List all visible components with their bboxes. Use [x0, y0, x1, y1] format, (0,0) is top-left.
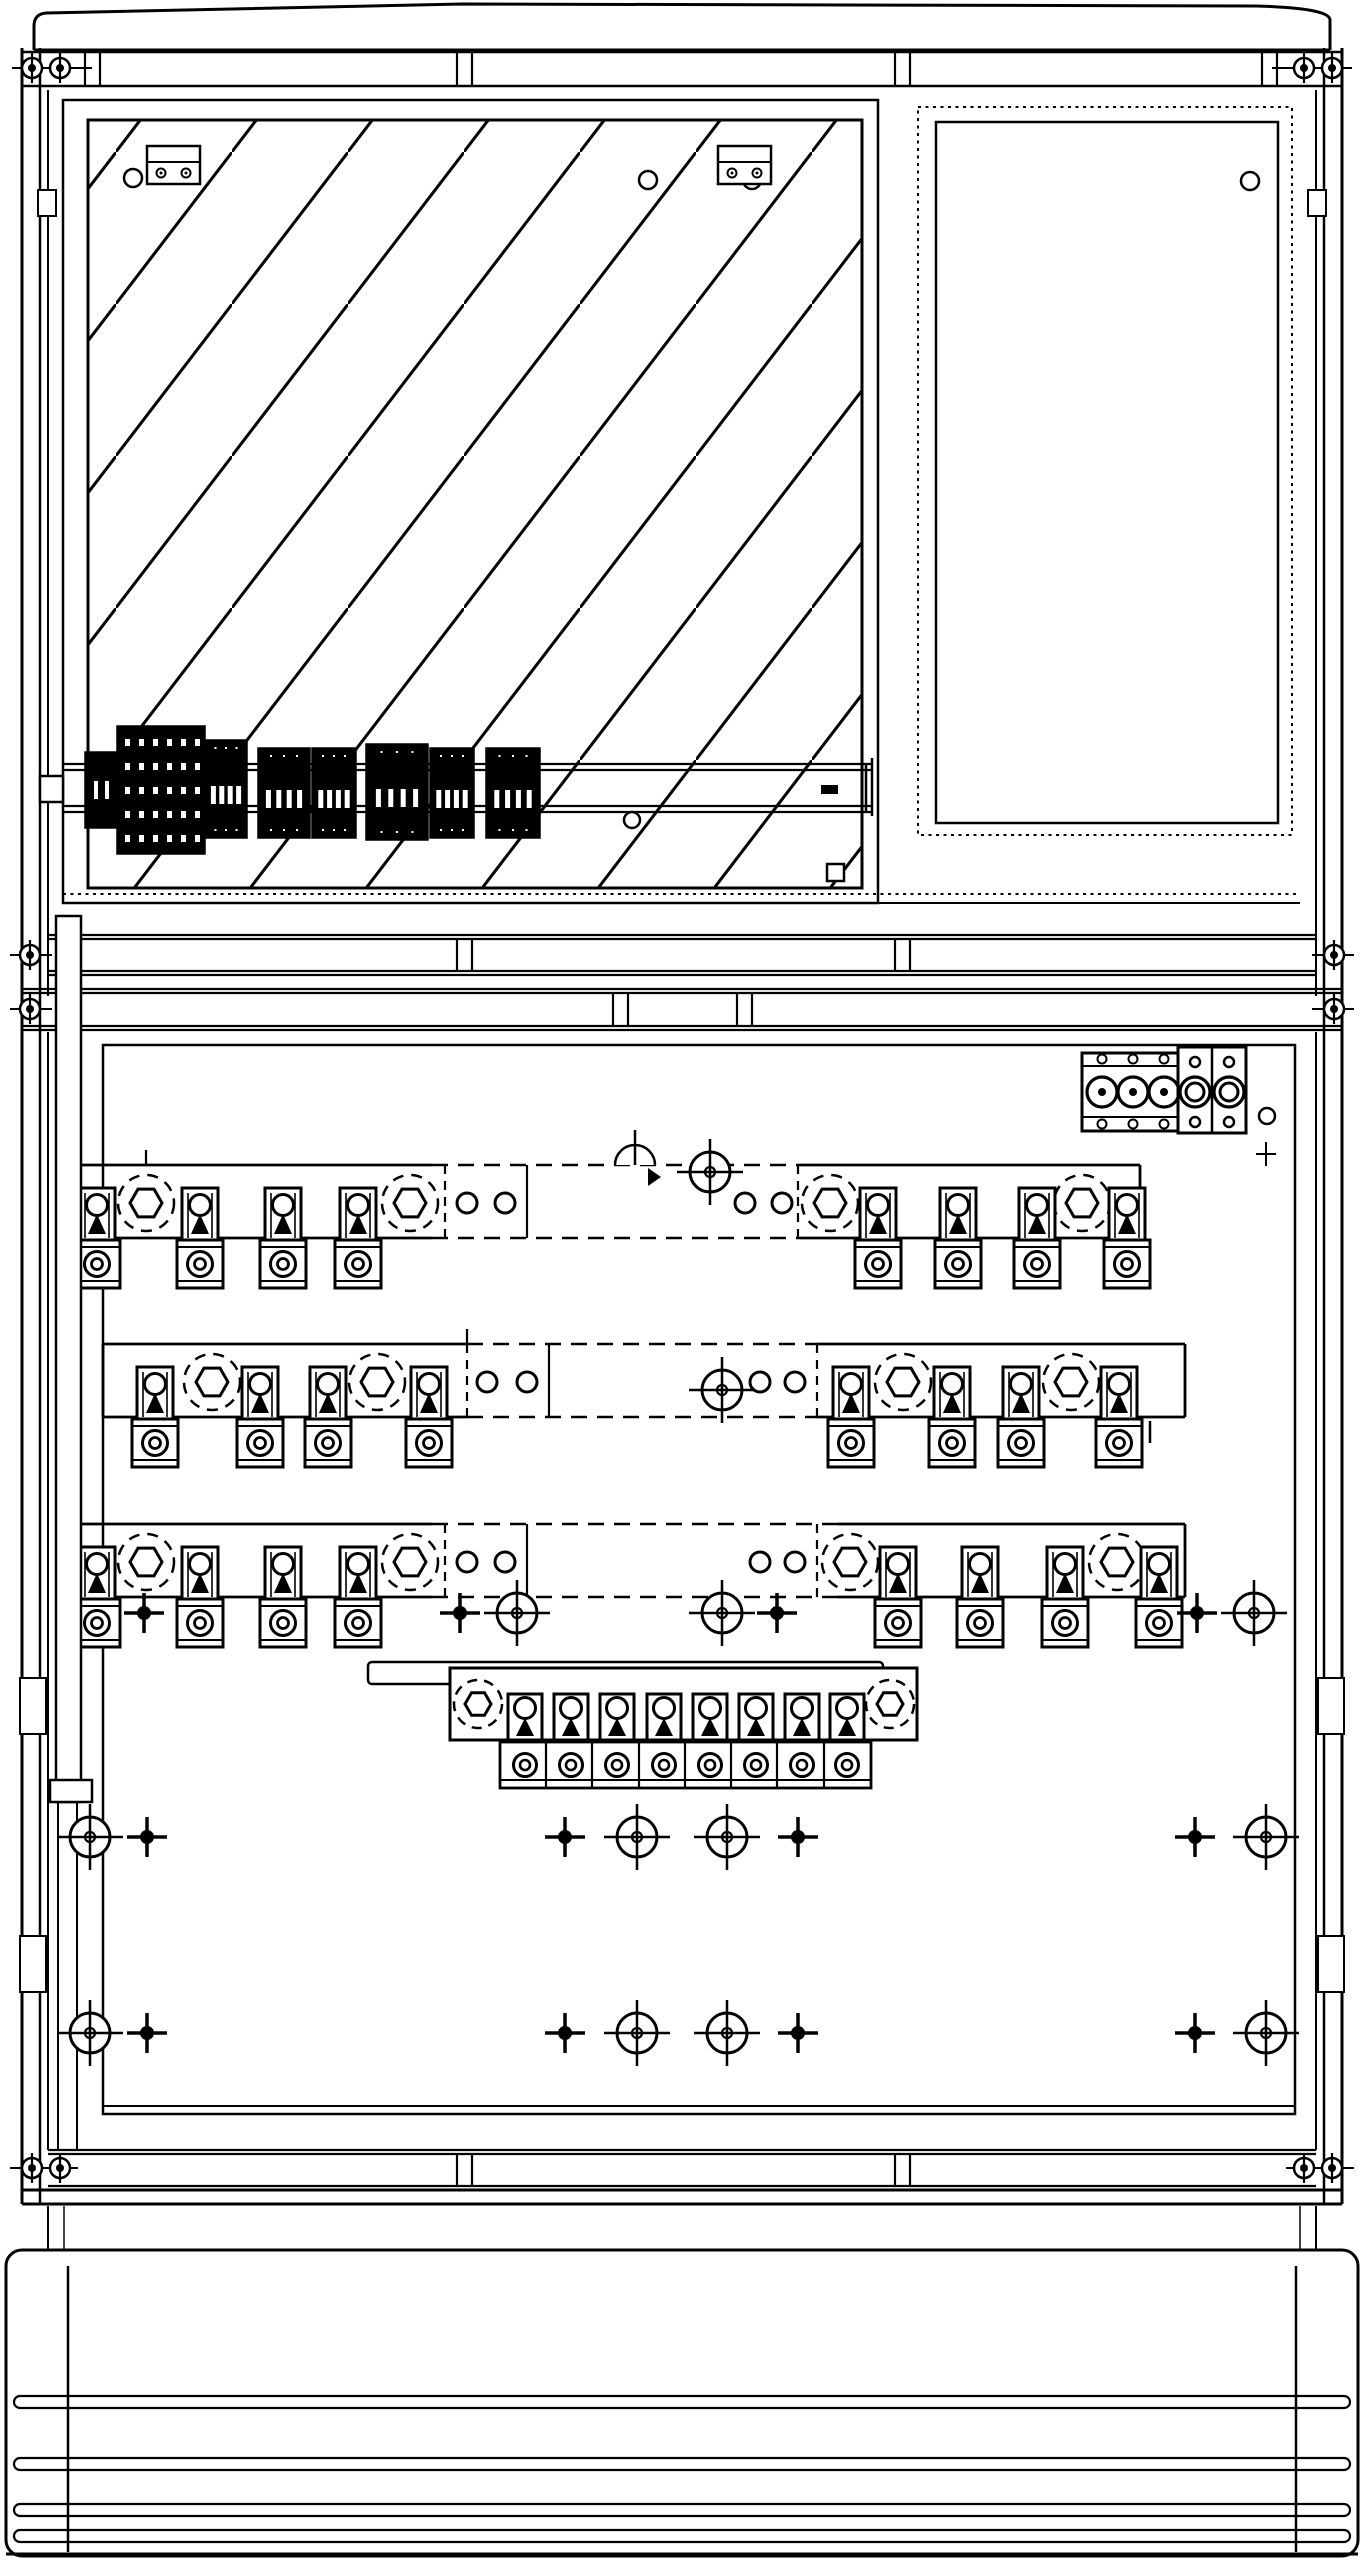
clamp-screw-icon	[87, 1554, 108, 1575]
cable-bracket	[718, 146, 771, 184]
block-slot	[166, 786, 173, 795]
busbar-row-L3	[74, 1524, 1185, 1647]
target-dot	[88, 1835, 92, 1839]
pad-ring-inner	[278, 1259, 289, 1270]
plus-marker-dot	[453, 1606, 467, 1620]
block-dot	[511, 828, 515, 832]
minus-mark-icon	[822, 786, 837, 793]
block-slot	[194, 762, 201, 771]
block-slot	[462, 789, 469, 809]
block-slot	[166, 834, 173, 843]
bracket-screw-dot	[731, 172, 734, 175]
frame-rect	[1318, 1678, 1344, 1734]
clamp-screw-icon	[888, 1554, 909, 1575]
block-slot	[166, 762, 173, 771]
target-dot	[635, 2031, 639, 2035]
pad-ring-inner	[92, 1259, 103, 1270]
target-dot	[708, 1170, 712, 1174]
pad-ring-inner	[612, 1760, 622, 1770]
block-slot	[526, 789, 533, 809]
block-dot	[439, 754, 443, 758]
block-slot	[104, 780, 110, 800]
block-dot	[321, 754, 325, 758]
pad-ring-inner	[150, 1438, 161, 1449]
block-slot	[152, 810, 159, 819]
pad-ring-inner	[353, 1259, 364, 1270]
plus-marker-dot	[791, 1830, 805, 1844]
frame-rect	[936, 122, 1278, 823]
pad-ring-inner	[520, 1760, 530, 1770]
plus-marker-dot	[558, 1830, 572, 1844]
pad-ring-inner	[278, 1618, 289, 1629]
block-slot	[152, 738, 159, 747]
block-slot	[444, 789, 451, 809]
busbar-hole-icon	[750, 1552, 770, 1572]
block-slot	[194, 834, 201, 843]
block-slot	[124, 786, 131, 795]
block-slot	[138, 762, 145, 771]
pad-ring-inner	[1122, 1259, 1133, 1270]
connector-screw-icon	[1098, 1055, 1107, 1064]
plinth-groove	[14, 2458, 1350, 2470]
pad-ring-inner	[323, 1438, 334, 1449]
bracket-screw-dot	[160, 172, 163, 175]
bracket-screw-dot	[756, 172, 759, 175]
plus-marker-dot	[137, 1606, 151, 1620]
block-slot	[387, 788, 394, 808]
plus-marker-dot	[558, 2026, 572, 2040]
block-dot	[450, 828, 454, 832]
neutral-bar-assembly	[368, 1662, 917, 1788]
plus-marker-dot	[140, 2026, 154, 2040]
block-slot	[326, 789, 333, 809]
clamp-screw-icon	[792, 1698, 813, 1719]
block-dot	[269, 828, 273, 832]
frame-rect	[20, 1936, 46, 1992]
plus-marker-dot	[140, 1830, 154, 1844]
frame-rect	[1318, 1936, 1344, 1992]
block-slot	[180, 786, 187, 795]
block-slot	[344, 789, 351, 809]
plus-marker-dot	[1188, 1830, 1202, 1844]
block-dot	[224, 746, 228, 750]
block-dot	[321, 828, 325, 832]
clamp-screw-icon	[561, 1698, 582, 1719]
half-target-flag	[648, 1168, 661, 1186]
pad-ring-inner	[1032, 1259, 1043, 1270]
block-dot	[343, 754, 347, 758]
target-dot	[1264, 1835, 1268, 1839]
pad-ring-inner	[846, 1438, 857, 1449]
block-slot	[515, 789, 522, 809]
target-dot	[725, 2031, 729, 2035]
busbar-row-L1	[74, 1130, 1150, 1288]
hex-bolt-icon	[130, 1189, 162, 1217]
clamp-screw-icon	[1117, 1195, 1138, 1216]
block-slot	[138, 834, 145, 843]
pad-ring-inner	[873, 1259, 884, 1270]
block-slot	[493, 789, 500, 809]
block-dot	[295, 828, 299, 832]
block-dot	[224, 828, 228, 832]
block-dot	[511, 754, 515, 758]
hex-bolt-icon	[1066, 1189, 1098, 1217]
busbar-hole-icon	[495, 1193, 515, 1213]
target-dot	[720, 1611, 724, 1615]
clamp-screw-icon	[419, 1374, 440, 1395]
block-dot	[411, 830, 415, 834]
pad-ring-inner	[893, 1618, 904, 1629]
block-slot	[166, 810, 173, 819]
clamp-screw-icon	[654, 1698, 675, 1719]
connector-screw-icon	[1129, 1055, 1138, 1064]
block-slot	[435, 789, 442, 809]
right-door-panel	[1241, 172, 1259, 190]
hex-bolt-icon	[834, 1548, 866, 1576]
clamp-screw-icon	[746, 1698, 767, 1719]
rail-left-connector	[40, 776, 63, 802]
plus-marker-dot	[770, 1606, 784, 1620]
clamp-screw-icon	[1055, 1554, 1076, 1575]
busbar-hole-icon	[517, 1372, 537, 1392]
clamp-screw-icon	[837, 1698, 858, 1719]
pad-ring-inner	[842, 1760, 852, 1770]
block-dot	[525, 828, 529, 832]
cabinet-front-view-drawing: Cable distribution cabinet - front view …	[0, 0, 1364, 2560]
fuse-screw-icon	[1224, 1057, 1234, 1067]
busbar-hole-icon	[457, 1552, 477, 1572]
pad-ring-inner	[1154, 1618, 1165, 1629]
hex-bolt-icon	[361, 1368, 393, 1396]
target-dot	[515, 1611, 519, 1615]
block-slot	[375, 788, 382, 808]
block-dot	[380, 830, 384, 834]
block-dot	[214, 746, 218, 750]
busbar-hole-icon	[785, 1372, 805, 1392]
block-dot	[282, 828, 286, 832]
busbar-hole-icon	[477, 1372, 497, 1392]
fuse-screw-icon	[1190, 1117, 1200, 1127]
busbar-assembly	[74, 1130, 1185, 1647]
block-slot	[218, 785, 225, 805]
block-slot	[180, 834, 187, 843]
pad-ring-inner	[705, 1760, 715, 1770]
connector-screw-icon	[1098, 1120, 1107, 1129]
service-connector-block	[1082, 1047, 1276, 1166]
block-slot	[180, 738, 187, 747]
terminal-block	[85, 752, 117, 828]
panel-hole-icon	[124, 169, 142, 187]
block-slot	[138, 786, 145, 795]
block-slot	[124, 738, 131, 747]
plinth-groove	[14, 2396, 1350, 2408]
hex-bolt-icon	[394, 1548, 426, 1576]
block-slot	[265, 789, 272, 809]
busbar-hole-icon	[785, 1552, 805, 1572]
block-slot	[166, 738, 173, 747]
pad-ring-inner	[659, 1760, 669, 1770]
busbar-hole-icon	[457, 1193, 477, 1213]
frame-rect	[918, 107, 1292, 835]
hex-bolt-icon	[1101, 1548, 1133, 1576]
mounting-hole-markers	[57, 1580, 1299, 2066]
busbar-row-L2	[103, 1329, 1185, 1467]
block-dot	[461, 828, 465, 832]
block-slot	[296, 789, 303, 809]
block-slot	[152, 762, 159, 771]
technical-drawing-page: Cable distribution cabinet - front view …	[0, 0, 1364, 2560]
block-dot	[214, 828, 218, 832]
block-dot	[343, 828, 347, 832]
hex-bolt-icon	[877, 1693, 903, 1716]
clamp-screw-icon	[942, 1374, 963, 1395]
pad-ring-inner	[947, 1438, 958, 1449]
hex-bolt-icon	[130, 1548, 162, 1576]
hex-bolt-icon	[465, 1693, 491, 1716]
clamp-screw-icon	[348, 1195, 369, 1216]
duct-foot	[50, 1780, 92, 1802]
block-dot	[411, 750, 415, 754]
panel-hole-icon	[1259, 1108, 1275, 1124]
hex-bolt-icon	[394, 1189, 426, 1217]
block-slot	[93, 780, 99, 800]
pad-ring-inner	[195, 1259, 206, 1270]
roof-cap	[34, 4, 1330, 50]
pad-ring-inner	[92, 1618, 103, 1629]
block-dot	[498, 754, 502, 758]
block-slot	[335, 789, 342, 809]
pad-ring-inner	[1016, 1438, 1027, 1449]
block-slot	[180, 762, 187, 771]
pad-ring-inner	[1060, 1618, 1071, 1629]
hex-bolt-icon	[1055, 1368, 1087, 1396]
clamp-screw-icon	[318, 1374, 339, 1395]
block-dot	[295, 754, 299, 758]
door-hole-icon	[1241, 172, 1259, 190]
frame-rect	[1308, 190, 1326, 216]
duct-body	[56, 916, 81, 1802]
hex-bolt-icon	[196, 1368, 228, 1396]
target-dot	[725, 1835, 729, 1839]
frame-rect	[20, 1678, 46, 1734]
pad-ring-inner	[953, 1259, 964, 1270]
plinth-base	[6, 2250, 1358, 2556]
block-slot	[152, 786, 159, 795]
block-dot	[525, 754, 529, 758]
block-slot	[152, 834, 159, 843]
panel-hole-icon	[639, 171, 657, 189]
block-slot	[227, 785, 234, 805]
clamp-screw-icon	[515, 1698, 536, 1719]
block-slot	[286, 789, 293, 809]
block-dot	[269, 754, 273, 758]
plinth-groove	[14, 2530, 1350, 2542]
target-dot	[1264, 2031, 1268, 2035]
pad-ring-inner	[975, 1618, 986, 1629]
block-dot	[395, 830, 399, 834]
block-slot	[400, 788, 407, 808]
block-slot	[124, 810, 131, 819]
block-dot	[332, 828, 336, 832]
block-dot	[395, 750, 399, 754]
clamp-screw-icon	[190, 1554, 211, 1575]
block-slot	[124, 762, 131, 771]
clamp-screw-icon	[190, 1195, 211, 1216]
block-slot	[235, 785, 242, 805]
pad-ring-inner	[255, 1438, 266, 1449]
block-slot	[138, 738, 145, 747]
pad-ring-inner	[1114, 1438, 1125, 1449]
connector-screw-icon	[1160, 1120, 1169, 1129]
block-slot	[210, 785, 217, 805]
block-dot	[282, 754, 286, 758]
plus-marker-dot	[791, 2026, 805, 2040]
clamp-screw-icon	[1109, 1374, 1130, 1395]
pad-ring-inner	[424, 1438, 435, 1449]
block-dot	[235, 828, 239, 832]
block-slot	[504, 789, 511, 809]
terminal-dot	[1129, 1088, 1137, 1096]
block-slot	[194, 786, 201, 795]
block-slot	[317, 789, 324, 809]
fuse-screw-icon	[1190, 1057, 1200, 1067]
clamp-screw-icon	[868, 1195, 889, 1216]
terminal-dot	[1098, 1088, 1106, 1096]
block-slot	[138, 810, 145, 819]
target-dot	[88, 2031, 92, 2035]
pad-ring-inner	[195, 1618, 206, 1629]
block-slot	[124, 834, 131, 843]
connector-screw-icon	[1160, 1055, 1169, 1064]
target-dot	[720, 1388, 724, 1392]
block-slot	[180, 810, 187, 819]
plus-marker-dot	[1190, 1606, 1204, 1620]
clamp-screw-icon	[1011, 1374, 1032, 1395]
block-slot	[194, 738, 201, 747]
clamp-screw-icon	[273, 1195, 294, 1216]
plinth-outline	[6, 2250, 1358, 2556]
clamp-screw-icon	[841, 1374, 862, 1395]
pad-ring-inner	[751, 1760, 761, 1770]
block-dot	[439, 828, 443, 832]
block-slot	[412, 788, 419, 808]
block-dot	[380, 750, 384, 754]
clamp-screw-icon	[1149, 1554, 1170, 1575]
target-dot	[635, 1835, 639, 1839]
plinth-groove	[14, 2504, 1350, 2516]
busbar-hole-icon	[772, 1193, 792, 1213]
clamp-screw-icon	[87, 1195, 108, 1216]
busbar-hole-icon	[735, 1193, 755, 1213]
pad-ring-inner	[797, 1760, 807, 1770]
fuse-screw-icon	[1224, 1117, 1234, 1127]
clamp-screw-icon	[948, 1195, 969, 1216]
block-slot	[453, 789, 460, 809]
clamp-screw-icon	[273, 1554, 294, 1575]
block-slot	[275, 789, 282, 809]
block-dot	[450, 754, 454, 758]
frame-rect	[38, 190, 56, 216]
hex-bolt-icon	[887, 1368, 919, 1396]
block-dot	[235, 746, 239, 750]
clamp-screw-icon	[348, 1554, 369, 1575]
plus-marker-dot	[1188, 2026, 1202, 2040]
panel-hole-icon	[624, 812, 640, 828]
clamp-screw-icon	[970, 1554, 991, 1575]
block-dot	[461, 754, 465, 758]
target-dot	[1252, 1611, 1256, 1615]
block-slot	[194, 810, 201, 819]
clamp-screw-icon	[250, 1374, 271, 1395]
pad-ring-inner	[566, 1760, 576, 1770]
busbar-hole-icon	[495, 1552, 515, 1572]
vertical-cable-duct	[50, 916, 92, 1802]
bracket-screw-dot	[185, 172, 188, 175]
block-dot	[332, 754, 336, 758]
pad-ring-inner	[353, 1618, 364, 1629]
hex-bolt-icon	[814, 1189, 846, 1217]
block-dot	[498, 828, 502, 832]
square-mark-icon	[827, 864, 844, 881]
clamp-screw-icon	[1027, 1195, 1048, 1216]
clamp-screw-icon	[145, 1374, 166, 1395]
connector-screw-icon	[1129, 1120, 1138, 1129]
clamp-screw-icon	[607, 1698, 628, 1719]
terminal-dot	[1160, 1088, 1168, 1096]
clamp-screw-icon	[700, 1698, 721, 1719]
cable-bracket	[147, 146, 200, 184]
